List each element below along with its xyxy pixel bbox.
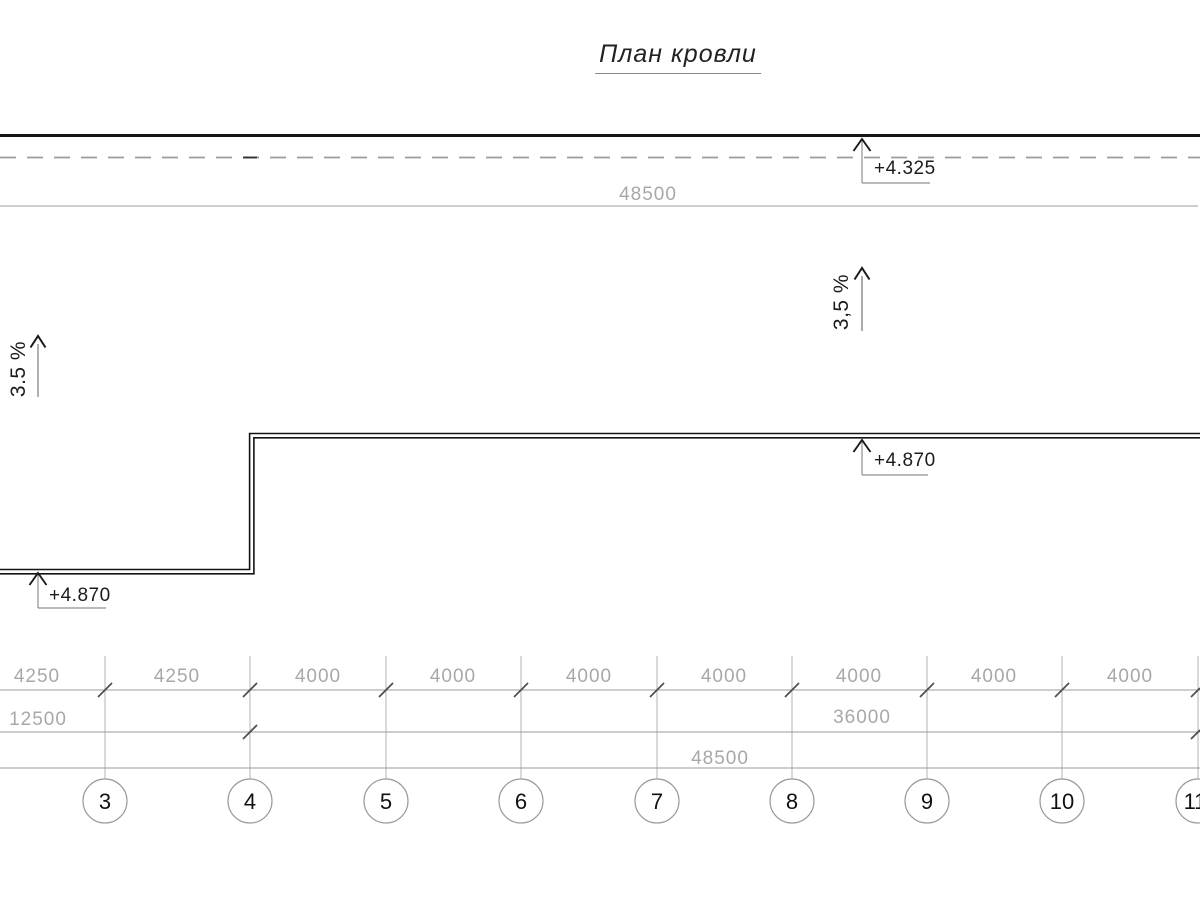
roof-outline xyxy=(0,434,1200,574)
axis-bubble-label: 11 xyxy=(1184,789,1200,815)
axis-bubble-label: 6 xyxy=(515,789,527,815)
dimension-segment: 4000 xyxy=(295,666,341,688)
axis-bubble-label: 4 xyxy=(244,789,256,815)
dimension-segment: 4000 xyxy=(1107,666,1153,688)
dimension-segment: 4000 xyxy=(566,666,612,688)
drawing-title: План кровли xyxy=(595,40,761,74)
elevation-parapet-label: +4.325 xyxy=(874,158,936,180)
elevation-left-label: +4.870 xyxy=(49,585,111,607)
elevation-right-label: +4.870 xyxy=(874,450,936,472)
axis-bubble-label: 8 xyxy=(786,789,798,815)
dimension-top-total: 48500 xyxy=(619,184,677,206)
dimension-ticks xyxy=(98,683,1200,739)
axis-bubble-label: 9 xyxy=(921,789,933,815)
bottom-dimension-lines xyxy=(0,690,1200,768)
grid-extension-lines xyxy=(105,656,1198,779)
axis-bubble-label: 10 xyxy=(1050,789,1074,815)
roof-plan-drawing: План кровли 48500 +4.325 +4.870 +4.870 3… xyxy=(0,0,1200,900)
axis-bubble-label: 7 xyxy=(651,789,663,815)
axis-bubble-label: 5 xyxy=(380,789,392,815)
dimension-segment: 4000 xyxy=(430,666,476,688)
dimension-segment: 4000 xyxy=(836,666,882,688)
axis-bubble-label: 3 xyxy=(99,789,111,815)
drawing-linework xyxy=(0,0,1200,900)
dimension-subtotal: 36000 xyxy=(833,707,891,729)
dimension-grand-total: 48500 xyxy=(691,748,749,770)
dimension-subtotal: 12500 xyxy=(9,709,67,731)
dimension-segment: 4000 xyxy=(971,666,1017,688)
slope-right-label: 3,5 % xyxy=(830,274,854,330)
slope-arrow-left xyxy=(31,336,46,397)
slope-left-label: 3.5 % xyxy=(7,341,31,397)
slope-arrow-right xyxy=(855,268,870,331)
dimension-segment: 4000 xyxy=(701,666,747,688)
dimension-segment: 4250 xyxy=(154,666,200,688)
dimension-segment: 4250 xyxy=(14,666,60,688)
